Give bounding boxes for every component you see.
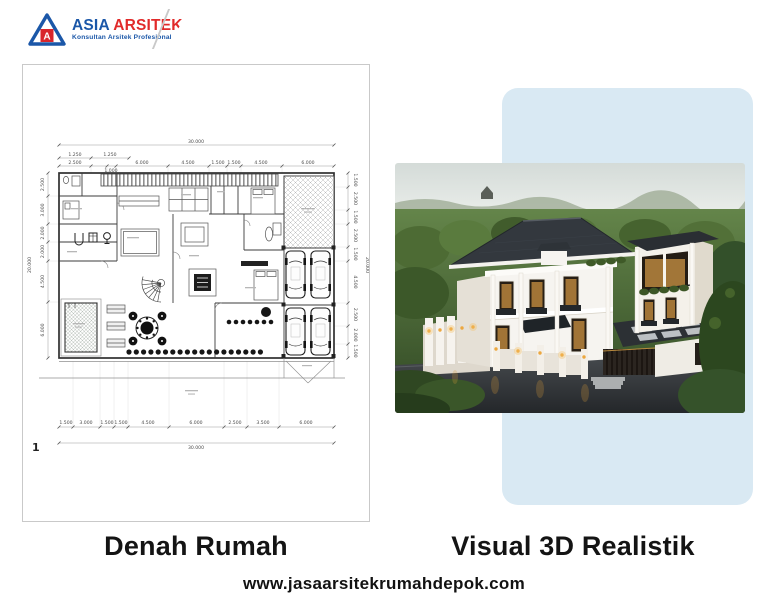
svg-text:4.500: 4.500 [141,420,154,426]
terrace-lines [39,358,345,383]
svg-text:2.000: 2.000 [40,245,46,258]
svg-text:4.500: 4.500 [254,160,267,166]
logo-tagline: Konsultan Arsitek Profesional [72,35,183,42]
svg-text:2.500: 2.500 [352,308,358,321]
poster: A ASIA ARSITEK Konsultan Arsitek Profesi… [0,0,768,615]
svg-text:1.500: 1.500 [352,210,358,223]
caption-3d-visual: Visual 3D Realistik [398,531,748,562]
logo-letter: A [43,32,50,43]
dim-top-total: 30.000 [188,139,204,145]
svg-text:2.500: 2.500 [40,178,46,191]
house-side-facade [457,275,490,367]
dim-right-total: 20.000 [364,257,369,273]
svg-text:2.000: 2.000 [40,226,46,239]
svg-text:1.500: 1.500 [114,420,127,426]
dim-left-total: 20.000 [27,257,33,273]
svg-text:3.000: 3.000 [79,420,92,426]
logo-triangle-icon: A [28,13,66,47]
house-render-illustration [395,163,745,413]
logo-text: ASIA ARSITEK Konsultan Arsitek Profesion… [72,18,183,42]
svg-text:4.500: 4.500 [181,160,194,166]
steps [591,377,625,389]
svg-text:3.500: 3.500 [256,420,269,426]
svg-text:1.500: 1.500 [227,160,240,166]
svg-text:1.250: 1.250 [103,152,116,158]
svg-text:6.000: 6.000 [189,420,202,426]
svg-text:1.500: 1.500 [352,344,358,357]
brand-second: ARSITEK [113,17,182,34]
sheet-number: 1 [32,441,40,454]
pergola-strip [101,174,278,186]
svg-text:2.000: 2.000 [352,328,358,341]
website-url[interactable]: www.jasaarsitekrumahdepok.com [0,574,768,594]
svg-text:3.000: 3.000 [40,203,46,216]
svg-text:1.500: 1.500 [100,420,113,426]
svg-text:6.000: 6.000 [40,323,46,336]
console-bar [241,261,268,266]
svg-text:6.000: 6.000 [135,160,148,166]
svg-text:4.500: 4.500 [40,275,46,288]
dim-bottom-total: 30.000 [188,445,204,451]
svg-text:1.500: 1.500 [352,247,358,260]
brand-first: ASIA [72,17,109,34]
fountain [136,317,158,339]
floor-plan-panel: 30.000 1.250 1.250 2.500 1.000 6.000 4.5… [22,64,370,522]
svg-text:1.500: 1.500 [59,420,72,426]
dormer [541,251,567,265]
svg-text:2.500: 2.500 [352,192,358,205]
svg-text:2.500: 2.500 [68,160,81,166]
svg-text:2.500: 2.500 [228,420,241,426]
svg-text:2.500: 2.500 [352,229,358,242]
house-render-photo [395,163,745,413]
svg-text:1.250: 1.250 [68,152,81,158]
svg-text:6.000: 6.000 [301,160,314,166]
svg-text:6.000: 6.000 [299,420,312,426]
caption-floor-plan: Denah Rumah [22,531,370,562]
floor-plan-drawing: 30.000 1.250 1.250 2.500 1.000 6.000 4.5… [23,65,369,521]
svg-text:4.500: 4.500 [352,275,358,288]
svg-text:1.500: 1.500 [352,173,358,186]
svg-text:1.500: 1.500 [211,160,224,166]
